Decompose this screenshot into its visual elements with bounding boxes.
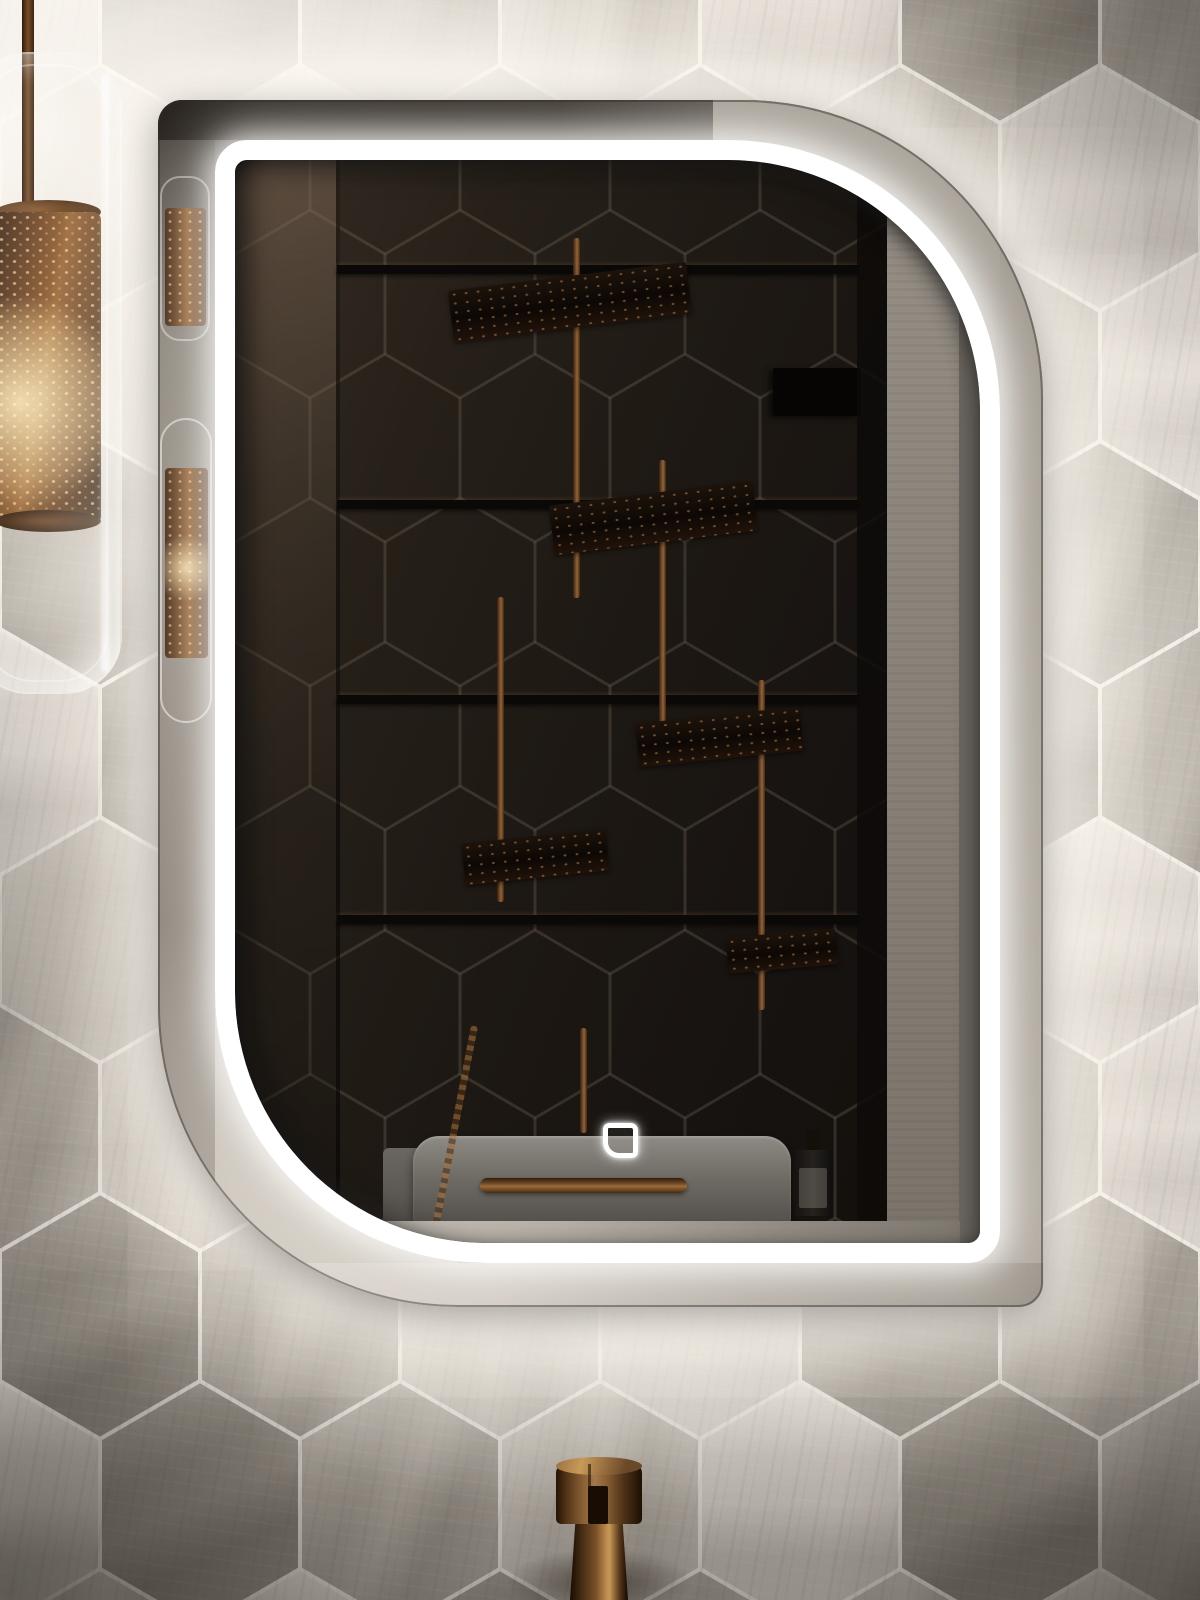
- pendant-lamp: [0, 0, 132, 700]
- lamp-reflection-shade: [165, 468, 208, 658]
- faucet-notch: [588, 1486, 608, 1524]
- mirror-bottom-margin: [198, 1263, 1043, 1307]
- shower-glass-frame-reflection: [337, 695, 860, 704]
- reflected-edge-band: [959, 160, 980, 1243]
- faucet-stem: [570, 1524, 628, 1600]
- touch-sensor-icon: [603, 1123, 638, 1158]
- shower-glass-frame-reflection: [337, 915, 860, 924]
- mirror-reflection: [235, 160, 980, 1243]
- bathroom-scene: [0, 0, 1200, 1600]
- led-strip: [215, 140, 1000, 1263]
- hex-tile-reflection: [460, 930, 610, 1118]
- reflected-concrete-strip: [887, 160, 959, 1243]
- hex-tile-reflection: [610, 160, 760, 254]
- copper-pipe-reflection: [580, 1028, 587, 1133]
- lamp-glass-inner-outline: [0, 64, 108, 682]
- mirror-right-margin: [1000, 140, 1043, 1263]
- hex-tile-reflection: [535, 786, 685, 974]
- glass-door-hinge-reflection: [773, 368, 861, 416]
- reflected-floor: [293, 1221, 960, 1243]
- faucet-seam: [588, 1464, 591, 1488]
- mirror-left-margin: [158, 140, 215, 1263]
- hex-tile-reflection: [385, 498, 535, 686]
- reflected-towel-bar: [480, 1178, 687, 1193]
- led-mirror: [158, 100, 1043, 1307]
- reflected-bottle: [793, 1150, 833, 1216]
- shower-glass-edge: [235, 160, 340, 1243]
- hex-tile-reflection: [460, 642, 610, 830]
- hex-tile-reflection: [460, 160, 610, 254]
- lamp-reflection-shade: [165, 208, 206, 326]
- reflected-wall-shadow: [857, 160, 887, 1243]
- lamp-glass-cylinder: [0, 52, 122, 694]
- faucet: [548, 1458, 650, 1600]
